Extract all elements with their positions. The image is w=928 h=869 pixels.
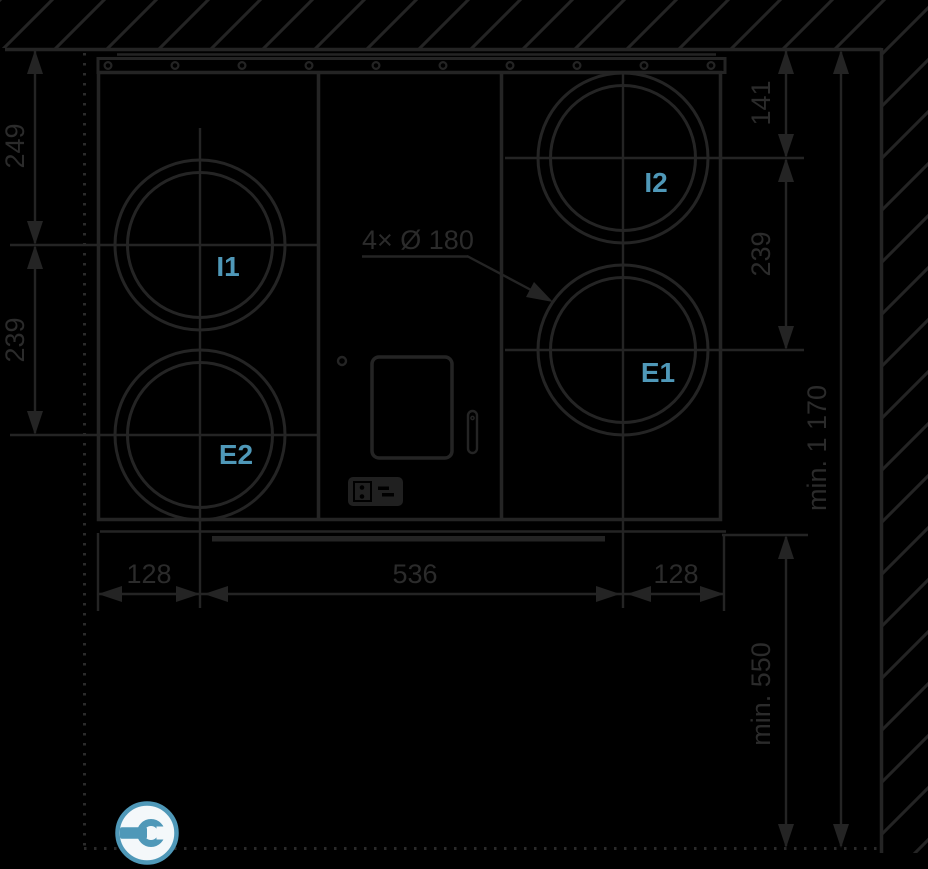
dim-text-141: 141 bbox=[746, 80, 776, 125]
dim-141-right bbox=[778, 50, 794, 158]
dim-text-249: 249 bbox=[0, 123, 30, 168]
port-label-i1: I1 bbox=[216, 251, 239, 282]
duct-ports-leader bbox=[362, 256, 553, 302]
dim-text-536: 536 bbox=[392, 559, 437, 589]
port-label-e2: E2 bbox=[219, 439, 253, 470]
dim-text-min-1170: min. 1 170 bbox=[802, 385, 832, 511]
dim-text-128-right: 128 bbox=[653, 559, 698, 589]
port-label-i2: I2 bbox=[644, 167, 667, 198]
screw-holes bbox=[105, 62, 715, 69]
cabinet-outline bbox=[99, 73, 721, 520]
dim-min-1170 bbox=[833, 50, 849, 848]
duct-ports bbox=[115, 73, 708, 520]
drawing-svg: 249 239 141 239 min. 550 min. 1 170 128 … bbox=[0, 0, 928, 869]
dimension-lines bbox=[27, 50, 849, 848]
dim-text-min-550: min. 550 bbox=[746, 642, 776, 746]
dim-text-128-left: 128 bbox=[126, 559, 171, 589]
dim-min-550 bbox=[778, 535, 794, 848]
mounting-rail bbox=[98, 55, 725, 73]
door-screw bbox=[338, 357, 346, 365]
electrical-connection-icon bbox=[348, 477, 403, 506]
access-door-panel bbox=[372, 357, 452, 458]
door-handle bbox=[468, 411, 477, 453]
wall-hatch-area bbox=[0, 0, 928, 853]
bottom-duct-bar bbox=[212, 536, 605, 542]
port-label-e1: E1 bbox=[641, 357, 675, 388]
wrench-icon bbox=[118, 804, 177, 863]
dim-text-239-right: 239 bbox=[746, 231, 776, 276]
installation-drawing: 249 239 141 239 min. 550 min. 1 170 128 … bbox=[0, 0, 928, 869]
dim-239-right bbox=[778, 158, 794, 350]
dim-text-239-left: 239 bbox=[0, 317, 30, 362]
annotation-duct-ports: 4× Ø 180 bbox=[362, 225, 474, 255]
